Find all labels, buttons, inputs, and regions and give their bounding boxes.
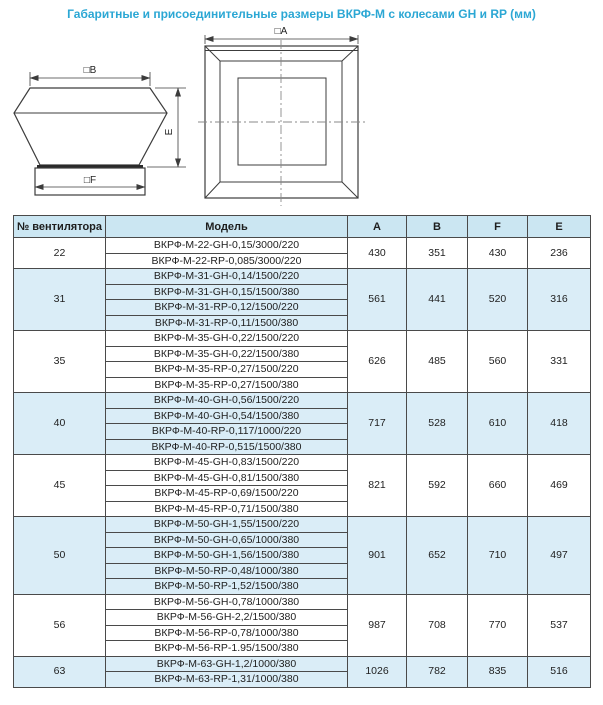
- fan-number-cell: 50: [14, 517, 106, 595]
- dim-a-cell: 1026: [348, 656, 407, 687]
- table-row: 56ВКРФ-М-56-GH-0,78/1000/380987708770537: [14, 594, 591, 610]
- inner-square: [238, 78, 326, 165]
- model-cell: ВКРФ-М-50-GH-1,55/1500/220: [106, 517, 348, 533]
- dim-f-cell: 710: [468, 517, 528, 595]
- dim-label-e: E: [164, 128, 175, 135]
- table-row: 40ВКРФ-М-40-GH-0,56/1500/220717528610418: [14, 393, 591, 409]
- dim-b-cell: 528: [407, 393, 468, 455]
- dim-f-cell: 520: [468, 269, 528, 331]
- dim-label-f: □F: [84, 175, 96, 186]
- fan-number-cell: 31: [14, 269, 106, 331]
- model-cell: ВКРФ-М-40-GH-0,54/1500/380: [106, 408, 348, 424]
- model-cell: ВКРФ-М-56-GH-2,2/1500/380: [106, 610, 348, 626]
- dim-label-a: □A: [275, 26, 288, 37]
- dim-a-cell: 987: [348, 594, 407, 656]
- model-cell: ВКРФ-М-45-GH-0,83/1500/220: [106, 455, 348, 471]
- dim-a-cell: 717: [348, 393, 407, 455]
- dim-label-b: □B: [84, 65, 97, 76]
- header-f: F: [468, 216, 528, 238]
- dim-a-cell: 561: [348, 269, 407, 331]
- model-cell: ВКРФ-М-22-GH-0,15/3000/220: [106, 238, 348, 254]
- model-cell: ВКРФ-М-45-RP-0,71/1500/380: [106, 501, 348, 517]
- model-cell: ВКРФ-М-50-RP-1,52/1500/380: [106, 579, 348, 595]
- model-cell: ВКРФ-М-50-RP-0,48/1000/380: [106, 563, 348, 579]
- dim-a-cell: 901: [348, 517, 407, 595]
- model-cell: ВКРФ-М-31-GH-0,14/1500/220: [106, 269, 348, 285]
- dim-e-cell: 537: [528, 594, 591, 656]
- model-cell: ВКРФ-М-31-RP-0,11/1500/380: [106, 315, 348, 331]
- dim-e-cell: 469: [528, 455, 591, 517]
- page-title: Габаритные и присоединительные размеры В…: [0, 7, 603, 21]
- dim-b-cell: 485: [407, 331, 468, 393]
- model-cell: ВКРФ-М-40-RP-0,117/1000/220: [106, 424, 348, 440]
- dimensions-table: № вентилятора Модель A B F E 22ВКРФ-М-22…: [13, 215, 591, 688]
- dim-b-cell: 782: [407, 656, 468, 687]
- table-row: 35ВКРФ-М-35-GH-0,22/1500/220626485560331: [14, 331, 591, 347]
- dim-b-cell: 652: [407, 517, 468, 595]
- catalog-page: Габаритные и присоединительные размеры В…: [0, 0, 603, 705]
- model-cell: ВКРФ-М-45-GH-0,81/1500/380: [106, 470, 348, 486]
- model-cell: ВКРФ-М-35-GH-0,22/1500/220: [106, 331, 348, 347]
- table-row: 22ВКРФ-М-22-GH-0,15/3000/220430351430236: [14, 238, 591, 254]
- dim-f-cell: 560: [468, 331, 528, 393]
- fan-number-cell: 35: [14, 331, 106, 393]
- fan-number-cell: 63: [14, 656, 106, 687]
- dim-e-cell: 497: [528, 517, 591, 595]
- model-cell: ВКРФ-М-50-GH-0,65/1000/380: [106, 532, 348, 548]
- model-cell: ВКРФ-М-56-RP-1.95/1500/380: [106, 641, 348, 657]
- dim-e-cell: 516: [528, 656, 591, 687]
- model-cell: ВКРФ-М-50-GH-1,56/1500/380: [106, 548, 348, 564]
- model-cell: ВКРФ-М-31-RP-0,12/1500/220: [106, 300, 348, 316]
- table-header-row: № вентилятора Модель A B F E: [14, 216, 591, 238]
- dim-f-cell: 430: [468, 238, 528, 269]
- dim-a-cell: 626: [348, 331, 407, 393]
- fan-body-outline: [14, 88, 167, 165]
- table-row: 63ВКРФ-М-63-GH-1,2/1000/3801026782835516: [14, 656, 591, 672]
- dim-b-cell: 592: [407, 455, 468, 517]
- header-fan-number: № вентилятора: [14, 216, 106, 238]
- header-a: A: [348, 216, 407, 238]
- model-cell: ВКРФ-М-45-RP-0,69/1500/220: [106, 486, 348, 502]
- model-cell: ВКРФ-М-56-GH-0,78/1000/380: [106, 594, 348, 610]
- model-cell: ВКРФ-М-40-GH-0,56/1500/220: [106, 393, 348, 409]
- dim-f-cell: 770: [468, 594, 528, 656]
- header-model: Модель: [106, 216, 348, 238]
- fan-side-view-diagram: □B □F E: [0, 55, 200, 210]
- model-cell: ВКРФ-М-31-GH-0,15/1500/380: [106, 284, 348, 300]
- dim-f-cell: 610: [468, 393, 528, 455]
- model-cell: ВКРФ-М-40-RP-0,515/1500/380: [106, 439, 348, 455]
- size-table-body: 22ВКРФ-М-22-GH-0,15/3000/220430351430236…: [14, 238, 591, 688]
- model-cell: ВКРФ-М-35-RP-0,27/1500/220: [106, 362, 348, 378]
- model-cell: ВКРФ-М-22-RP-0,085/3000/220: [106, 253, 348, 269]
- dim-b-cell: 441: [407, 269, 468, 331]
- table-row: 45ВКРФ-М-45-GH-0,83/1500/220821592660469: [14, 455, 591, 471]
- table-row: 31ВКРФ-М-31-GH-0,14/1500/220561441520316: [14, 269, 591, 285]
- fan-top-view-diagram: □A: [195, 25, 375, 215]
- dim-b-cell: 708: [407, 594, 468, 656]
- model-cell: ВКРФ-М-56-RP-0,78/1000/380: [106, 625, 348, 641]
- fan-number-cell: 45: [14, 455, 106, 517]
- dim-f-cell: 835: [468, 656, 528, 687]
- dim-e-cell: 331: [528, 331, 591, 393]
- dim-e-cell: 236: [528, 238, 591, 269]
- model-cell: ВКРФ-М-63-GH-1,2/1000/380: [106, 656, 348, 672]
- model-cell: ВКРФ-М-63-RP-1,31/1000/380: [106, 672, 348, 688]
- dim-a-cell: 821: [348, 455, 407, 517]
- header-b: B: [407, 216, 468, 238]
- dim-a-cell: 430: [348, 238, 407, 269]
- dim-e-cell: 316: [528, 269, 591, 331]
- fan-number-cell: 22: [14, 238, 106, 269]
- dim-e-cell: 418: [528, 393, 591, 455]
- dim-f-cell: 660: [468, 455, 528, 517]
- table-row: 50ВКРФ-М-50-GH-1,55/1500/220901652710497: [14, 517, 591, 533]
- fan-number-cell: 40: [14, 393, 106, 455]
- fan-number-cell: 56: [14, 594, 106, 656]
- model-cell: ВКРФ-М-35-RP-0,27/1500/380: [106, 377, 348, 393]
- dim-b-cell: 351: [407, 238, 468, 269]
- header-e: E: [528, 216, 591, 238]
- model-cell: ВКРФ-М-35-GH-0,22/1500/380: [106, 346, 348, 362]
